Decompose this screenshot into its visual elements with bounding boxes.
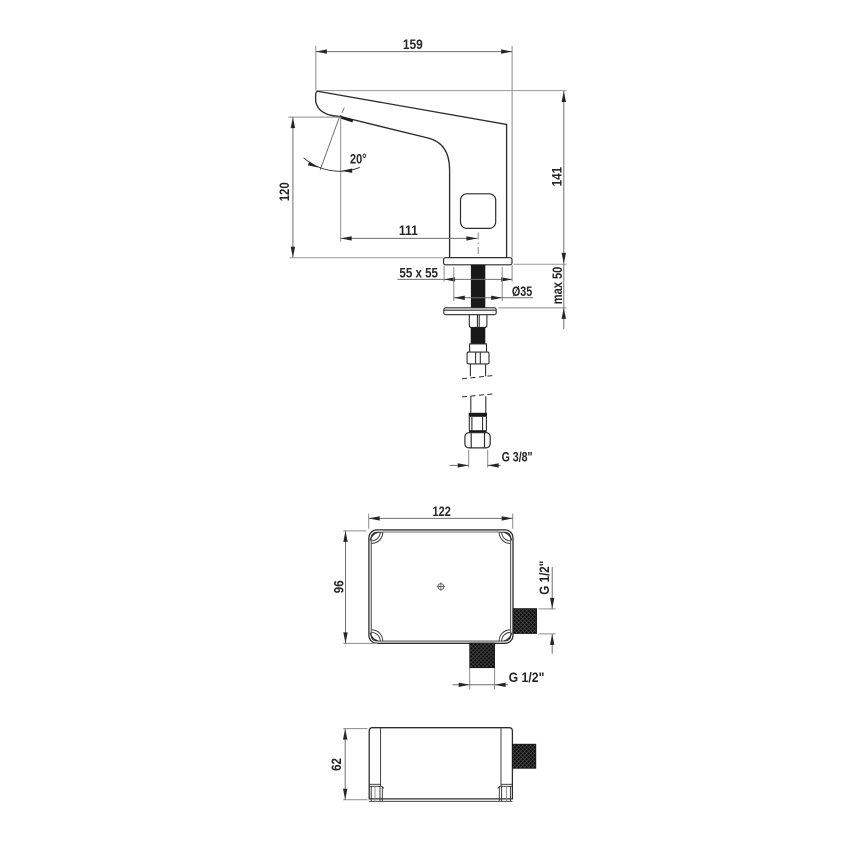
svg-text:55 x 55: 55 x 55 — [399, 264, 438, 280]
svg-text:max 50: max 50 — [549, 267, 565, 305]
svg-text:96: 96 — [331, 580, 347, 593]
svg-text:141: 141 — [548, 167, 564, 187]
svg-text:159: 159 — [403, 36, 423, 52]
svg-text:Ø35: Ø35 — [512, 283, 532, 299]
svg-text:G 3/8": G 3/8" — [502, 448, 533, 464]
svg-text:G 1/2": G 1/2" — [536, 561, 552, 595]
svg-text:G 1/2": G 1/2" — [509, 669, 545, 685]
svg-text:20°: 20° — [350, 150, 367, 166]
svg-text:62: 62 — [328, 758, 344, 771]
svg-text:120: 120 — [276, 182, 292, 201]
svg-text:111: 111 — [399, 222, 418, 238]
svg-text:122: 122 — [433, 503, 451, 519]
